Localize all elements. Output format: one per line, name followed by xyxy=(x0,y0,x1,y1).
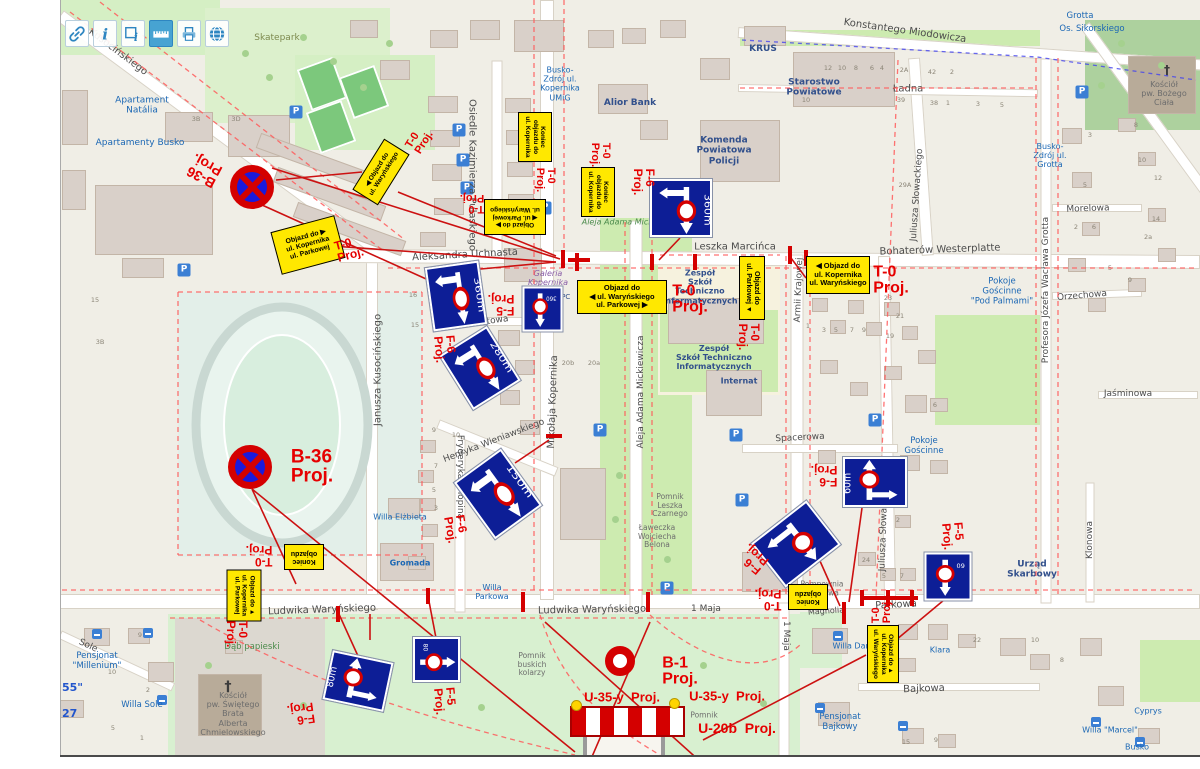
house-number: 3 xyxy=(976,100,980,108)
building xyxy=(1000,638,1026,656)
house-number: 9 xyxy=(934,736,938,744)
lodging-icon xyxy=(92,629,102,639)
street-name: 1 Maja xyxy=(691,604,721,614)
detour-board-line: objazdu xyxy=(291,549,317,557)
parking-icon: P xyxy=(1076,86,1089,99)
street-name: Jaśminowa xyxy=(1104,389,1152,399)
detour-board-line: objazdu do xyxy=(531,120,539,154)
parking-icon: P xyxy=(736,494,749,507)
detour-board-line: ◀ ul. Parkowej xyxy=(493,213,538,221)
building xyxy=(420,440,436,453)
street-name: Spacerowa xyxy=(775,432,825,445)
map-coordinate-label: 55" xyxy=(62,681,83,694)
detour-board-line: ul. Kopernika xyxy=(587,171,595,212)
building xyxy=(866,322,882,336)
house-number: 8 xyxy=(854,64,858,72)
tree-icon xyxy=(612,516,619,523)
svg-text:i: i xyxy=(102,25,108,43)
house-number: 5 xyxy=(882,572,886,580)
barrier-lamp-icon xyxy=(571,700,582,711)
place-label: † xyxy=(1164,64,1170,78)
b1-no-traffic-sign xyxy=(605,646,635,676)
house-number: 1 xyxy=(946,99,950,107)
lodging-icon xyxy=(898,721,908,731)
b36-no-stopping-sign xyxy=(228,445,272,489)
place-label: Willa Sole xyxy=(121,701,162,711)
place-label: Galeria Kopernika xyxy=(528,269,568,287)
map-coordinate-label: 27 xyxy=(62,707,77,720)
tree-icon xyxy=(266,74,273,81)
print-icon[interactable] xyxy=(177,20,201,47)
house-number: 12 xyxy=(1154,174,1162,182)
place-label: Willa "Marcel" xyxy=(1082,725,1138,734)
page-margin-left xyxy=(0,0,61,755)
street-name: Aleja Adama Mickiewicza xyxy=(636,336,646,449)
building xyxy=(928,624,948,640)
house-number: 29A xyxy=(899,181,912,189)
house-number: 1 xyxy=(140,734,144,742)
building xyxy=(1068,258,1086,272)
detour-board-line: ul. Kopernika xyxy=(524,116,532,157)
house-number: 22 xyxy=(973,636,981,644)
building xyxy=(515,360,535,375)
gis-map-app: PPPPPPPPPPPPPKusocińskiegoJanusza Kusoci… xyxy=(0,0,1200,769)
house-number: 5 xyxy=(111,724,115,732)
house-number: 39 xyxy=(897,96,905,104)
road xyxy=(858,683,1040,691)
building xyxy=(700,58,730,80)
house-number: 6 xyxy=(933,401,937,409)
house-number: 3 xyxy=(1088,131,1092,139)
detour-board: Objazd do ▶◀ ul. Parkowejul. Waryńskiego xyxy=(484,199,546,235)
house-number: 7 xyxy=(434,462,438,470)
parking-icon: P xyxy=(178,264,191,277)
project-label: T-0 Proj. xyxy=(460,192,484,214)
building xyxy=(898,658,916,672)
tree-icon xyxy=(386,40,393,47)
building xyxy=(938,734,956,748)
svg-text:60: 60 xyxy=(957,561,965,568)
f6-detour-sign: 360m xyxy=(650,179,712,237)
f6-detour-sign: 60m xyxy=(843,457,907,507)
lodging-icon xyxy=(833,631,843,641)
building xyxy=(62,90,88,145)
place-label: Willa Parkowa xyxy=(475,583,508,601)
project-label: T-0 Proj. xyxy=(672,284,708,317)
place-label: Busko- Zdrój ul. Kopernika UMiG xyxy=(540,66,580,103)
building xyxy=(122,258,164,278)
detour-board-line: ul. Kopernika xyxy=(240,574,248,615)
map-canvas[interactable]: PPPPPPPPPPPPPKusocińskiegoJanusza Kusoci… xyxy=(0,0,1200,755)
house-number: 5 xyxy=(1108,264,1112,272)
project-label: T-0 Proj. xyxy=(755,588,782,612)
house-number: 3B xyxy=(192,115,201,123)
project-label: F-6 Proj. xyxy=(432,335,459,364)
place-label: Skatepark xyxy=(254,33,300,43)
detour-board-line: ul. Waryńskiego xyxy=(872,629,880,679)
detour-board: Koniecobjazdu doul. Kopernika xyxy=(518,112,552,162)
street-name: Ładna xyxy=(893,84,924,95)
place-label: Os. Sikorskiego xyxy=(1059,25,1124,35)
tree-icon xyxy=(616,472,623,479)
building xyxy=(507,162,533,177)
barrier-lamp-icon xyxy=(669,698,680,709)
detour-board-line: Objazd do ▶ xyxy=(496,221,534,229)
house-number: 38 xyxy=(930,99,938,107)
project-label: B-36 Proj. xyxy=(291,448,333,487)
project-label: U-35-y Proj. xyxy=(584,690,660,703)
building xyxy=(514,20,564,52)
detour-board-line: objazdu xyxy=(795,589,821,597)
parking-icon: P xyxy=(594,424,607,437)
building xyxy=(884,366,902,380)
detour-board-line: ul. Waryńskiego xyxy=(809,279,866,288)
f6-detour-sign: 360m xyxy=(425,261,487,332)
detour-board: Objazd do◀ ul. Waryńskiegoul. Parkowej ▶ xyxy=(577,280,667,314)
house-number: 9 xyxy=(1128,276,1132,284)
house-number: 20a xyxy=(588,359,600,367)
building xyxy=(820,360,838,374)
house-number: 8 xyxy=(1134,121,1138,129)
place-label: Alior Bank xyxy=(604,98,656,108)
project-label: F-5 Proj. xyxy=(488,293,515,317)
house-number: 10 xyxy=(838,64,846,72)
f5-detour-sign: 60 xyxy=(925,552,972,600)
street-name: Bajkowa xyxy=(903,683,945,695)
detour-board: ◀ Objazd doul. Kopernikaul. Waryńskiego xyxy=(806,256,870,294)
house-number: 5 xyxy=(1000,101,1004,109)
place-label: Cyprys xyxy=(1134,706,1162,715)
house-number: 21 xyxy=(896,312,904,320)
house-number: 2A xyxy=(900,66,909,74)
detour-board-line: Koniec xyxy=(602,181,610,203)
house-number: 9 xyxy=(862,326,866,334)
building xyxy=(818,450,836,464)
place-label: Grotta xyxy=(1067,12,1094,22)
info-icon[interactable]: i xyxy=(93,20,117,47)
place-label: Pensjonat Bajkowy xyxy=(819,713,860,733)
parking-icon: P xyxy=(869,414,882,427)
house-number: 1 xyxy=(806,322,810,330)
house-number: 2 xyxy=(1074,223,1078,231)
street-name: Ludwika Waryńskiego xyxy=(538,604,646,617)
building xyxy=(432,164,462,181)
place-label: Urząd Skarbowy xyxy=(1007,560,1057,581)
house-number: 12 xyxy=(824,64,832,72)
building xyxy=(660,20,686,38)
building xyxy=(505,98,531,113)
detour-board: Objazd do ▲ul. Kopernikaul. Waryńskiego xyxy=(867,625,899,683)
lodging-icon xyxy=(143,628,153,638)
house-number: 24 xyxy=(862,556,870,564)
place-label: Internat xyxy=(721,376,758,385)
detour-board-line: ul. Parkowej ▶ xyxy=(596,301,648,310)
parking-icon: P xyxy=(661,582,674,595)
parking-icon: P xyxy=(290,106,303,119)
project-label: T-0 Proj. xyxy=(873,265,909,298)
tree-icon xyxy=(360,84,367,91)
b36-no-stopping-sign xyxy=(230,165,274,209)
building xyxy=(350,20,378,38)
house-number: 4 xyxy=(880,64,884,72)
tree-icon xyxy=(1098,82,1105,89)
parking-icon: P xyxy=(453,124,466,137)
house-number: 2 xyxy=(896,516,900,524)
house-number: 9 xyxy=(432,426,436,434)
svg-text:360: 360 xyxy=(545,295,556,301)
tree-icon xyxy=(478,704,485,711)
building xyxy=(640,120,668,140)
detour-board: Koniecobjazdu xyxy=(788,584,828,610)
project-label: T-0 Proj. xyxy=(871,599,893,623)
project-label: T-0 Proj. xyxy=(534,168,556,192)
house-number: 2a xyxy=(1144,233,1152,241)
tree-icon xyxy=(300,34,307,41)
building xyxy=(422,524,438,537)
building xyxy=(428,96,458,113)
map-toolbar: i i xyxy=(65,20,229,47)
house-number: 3D xyxy=(231,115,240,123)
house-number: 20b xyxy=(562,359,574,367)
building xyxy=(1158,248,1176,262)
house-number: 5 xyxy=(834,326,838,334)
house-number: 6 xyxy=(1092,223,1096,231)
parking-icon: P xyxy=(730,429,743,442)
house-number: 9 xyxy=(138,631,142,639)
land-area xyxy=(935,315,1040,425)
house-number: 3 xyxy=(822,326,826,334)
place-label: Pokoje Gościnne "Pod Palmami" xyxy=(971,277,1033,306)
project-label: T-0 Proj. xyxy=(225,621,249,648)
building xyxy=(560,468,606,540)
building xyxy=(380,60,410,80)
building xyxy=(848,300,864,314)
building xyxy=(918,350,936,364)
building xyxy=(420,232,446,247)
building xyxy=(470,20,500,40)
project-label: F-6 Proj. xyxy=(811,464,838,488)
house-number: 15 xyxy=(91,296,99,304)
f5-detour-sign: 80 xyxy=(413,637,460,682)
globe-icon[interactable] xyxy=(205,20,229,47)
house-number: 10 xyxy=(802,96,810,104)
tree-icon xyxy=(1118,40,1125,47)
house-number: 5 xyxy=(1083,181,1087,189)
detour-board-line: Koniec xyxy=(539,126,547,148)
house-number: 6 xyxy=(870,64,874,72)
project-label: B-1 Proj. xyxy=(662,656,698,689)
building xyxy=(898,624,918,640)
building xyxy=(622,28,646,44)
place-label: Komenda Powiatowa Policji xyxy=(696,135,751,166)
place-label: Willa Elżbieta xyxy=(373,512,427,521)
detour-board-line: ul. Parkowej ▼ xyxy=(744,263,752,313)
project-label: T-0 Proj. xyxy=(737,324,761,351)
detour-board-line: ul. Parkowej xyxy=(233,576,241,614)
street-name: Osiedle Kazimierza Pułaskiego xyxy=(467,99,478,251)
house-number: 19 xyxy=(886,332,894,340)
place-label: † xyxy=(225,679,232,695)
land-area xyxy=(1140,640,1200,702)
street-name: Profesora Józefa Wacława Grotta xyxy=(1041,217,1051,363)
tree-icon xyxy=(330,58,337,65)
tree-icon xyxy=(664,556,671,563)
place-label: Pomnik Leszka Czarnego xyxy=(652,493,687,519)
detour-board: Koniecobjazdu xyxy=(284,544,324,570)
house-number: 5 xyxy=(432,486,436,494)
measure-icon[interactable] xyxy=(149,20,173,47)
building xyxy=(498,330,520,346)
place-label: Kościół pw. Bożego Ciała xyxy=(1141,80,1186,108)
street-name: Klonowa xyxy=(1085,521,1095,559)
building xyxy=(812,298,828,312)
building xyxy=(902,326,918,340)
house-number: 42 xyxy=(928,68,936,76)
place-label: Busko- Zdrój ul. Grotta xyxy=(1033,142,1066,170)
detour-board: Koniecobjazdu doul. Kopernika xyxy=(581,167,615,217)
house-number: 10 xyxy=(1138,156,1146,164)
place-label: KRUS xyxy=(749,44,777,54)
detour-board-line: Objazd do ▲ xyxy=(248,575,256,615)
place-label: Apartamenty Busko xyxy=(96,138,185,148)
tree-icon xyxy=(700,662,707,669)
building xyxy=(430,30,458,48)
project-label: F-5 Proj. xyxy=(940,522,967,551)
project-label: F-6 Proj. xyxy=(286,700,316,728)
place-label: Apartament Natália xyxy=(115,96,169,117)
street-name: Janusza Kusocińskiego xyxy=(373,314,384,426)
svg-text:i: i xyxy=(134,31,138,43)
detour-board-line: objazdu do xyxy=(594,175,602,209)
building xyxy=(418,470,434,483)
street-name: Morelowa xyxy=(1066,203,1110,215)
f5-detour-sign: 360 xyxy=(522,287,562,332)
svg-text:360m: 360m xyxy=(702,194,710,226)
house-number: 16 xyxy=(409,291,417,299)
place-label: Gromada xyxy=(390,558,431,567)
u20b-barrier xyxy=(570,706,685,737)
detour-board: Objazd do ▲ul. Kopernikaul. Parkowej xyxy=(227,569,262,621)
street-name: Leszka Marcińca xyxy=(694,242,776,253)
building xyxy=(850,382,868,396)
svg-text:80: 80 xyxy=(421,643,428,651)
project-label: T-0 Proj. xyxy=(246,544,273,568)
house-number: 2 xyxy=(146,686,150,694)
place-label: Kościół pw. Świętego Brata Alberta Chmie… xyxy=(200,691,265,737)
building xyxy=(588,30,614,48)
street-name: Mikołaja Kopernika xyxy=(546,355,560,449)
identify-icon[interactable]: i xyxy=(121,20,145,47)
detour-board-line: ul. Kopernika xyxy=(879,633,887,674)
detour-board-line: Objazd do ▲ xyxy=(887,634,895,674)
detour-board: Objazd doul. Parkowej ▼ xyxy=(739,256,765,320)
project-label: U-20b Proj. xyxy=(698,721,776,735)
project-label: F-6 Proj. xyxy=(632,169,656,196)
house-number: 10 xyxy=(1031,636,1039,644)
house-number: 7 xyxy=(850,326,854,334)
house-number: 15 xyxy=(902,738,910,746)
link-icon[interactable] xyxy=(65,20,89,47)
detour-board-line: Objazd do xyxy=(752,271,760,305)
house-number: 10 xyxy=(108,668,116,676)
house-number: 3B xyxy=(96,338,105,346)
svg-text:60m: 60m xyxy=(845,473,854,494)
place-label: Klara xyxy=(930,645,951,654)
tree-icon xyxy=(242,50,249,57)
building xyxy=(930,460,948,474)
tree-icon xyxy=(205,662,212,669)
house-number: 14 xyxy=(1152,215,1160,223)
house-number: 8 xyxy=(1060,656,1064,664)
building xyxy=(148,662,174,682)
project-label: T-0 Proj. xyxy=(589,143,611,167)
house-number: 15 xyxy=(411,321,419,329)
place-label: Pokoje Gościnne xyxy=(904,437,943,457)
page-margin-bottom xyxy=(0,755,1200,769)
street-name: 1 Maja xyxy=(781,621,791,651)
detour-board-line: Koniec xyxy=(796,597,819,605)
place-label: Ławeczka Wojciecha Belona xyxy=(638,524,676,550)
project-label: F-6 Proj. xyxy=(442,514,471,545)
svg-text:360m: 360m xyxy=(472,277,485,313)
building xyxy=(1030,654,1050,670)
place-label: Pomnik buskich kolarzy xyxy=(518,652,547,678)
project-label: F-5 Proj. xyxy=(432,687,459,716)
project-label: U-35-y Proj. xyxy=(689,689,765,702)
detour-board-line: ul. Waryńskiego xyxy=(490,206,540,214)
building xyxy=(905,395,927,413)
place-label: Busko xyxy=(1125,742,1149,751)
building xyxy=(1080,638,1102,656)
house-number: 7 xyxy=(900,572,904,580)
road xyxy=(366,258,378,610)
house-number: 3 xyxy=(434,504,438,512)
house-number: 2 xyxy=(950,68,954,76)
place-label: Starostwo Powiatowe xyxy=(786,78,841,99)
house-number: 10 xyxy=(452,431,460,439)
building xyxy=(95,185,213,255)
building xyxy=(62,170,86,210)
detour-board-line: Koniec xyxy=(292,557,315,565)
building xyxy=(1098,686,1124,706)
